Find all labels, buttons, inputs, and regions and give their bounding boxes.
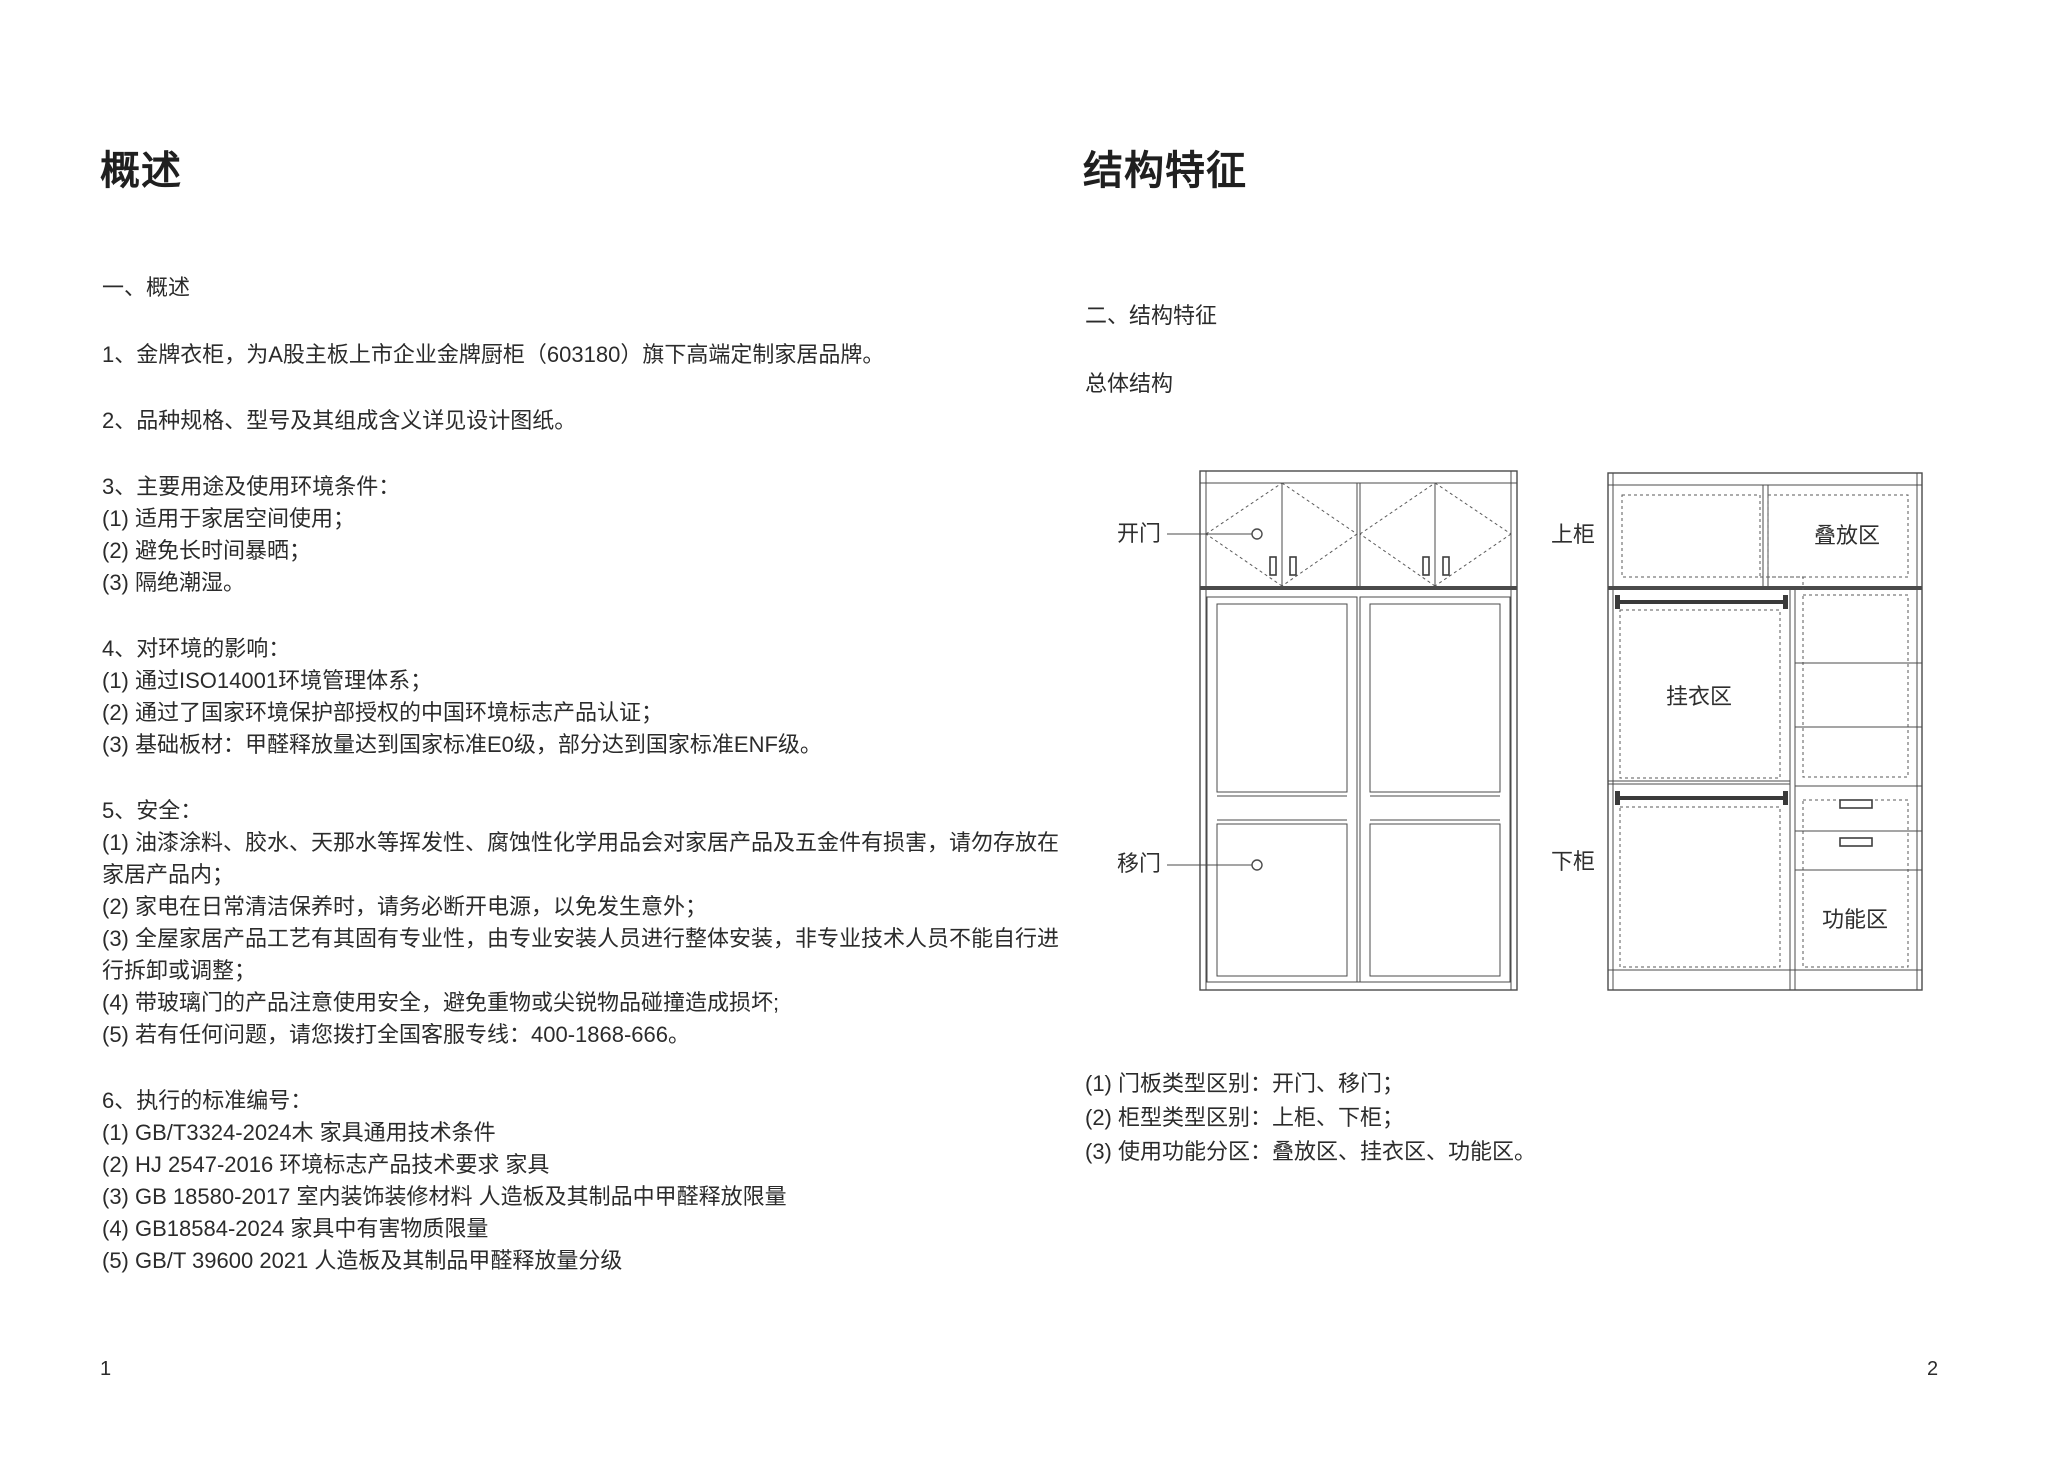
body-line: (2) 避免长时间暴晒； xyxy=(102,537,311,565)
open-door-label: 开门 xyxy=(1117,521,1161,547)
section-heading-structure: 二、结构特征 xyxy=(1085,302,1217,330)
page-number-right: 2 xyxy=(1927,1358,1938,1381)
body-line: (4) 带玻璃门的产品注意使用安全，避免重物或尖锐物品碰撞造成损坏; xyxy=(102,989,779,1017)
body-line: (3) 隔绝潮湿。 xyxy=(102,569,245,597)
drawer-section xyxy=(1795,800,1922,967)
body-line: (1) GB/T3324-2024木 家具通用技术条件 xyxy=(102,1119,496,1147)
page-number-left: 1 xyxy=(100,1358,111,1381)
note-line: (1) 门板类型区别：开门、移门； xyxy=(1085,1070,1404,1098)
hanging-rod-upper xyxy=(1615,595,1788,609)
body-line: (2) HJ 2547-2016 环境标志产品技术要求 家具 xyxy=(102,1151,549,1179)
note-line: (3) 使用功能分区：叠放区、挂衣区、功能区。 xyxy=(1085,1138,1536,1166)
body-line: (2) 家电在日常清洁保养时，请务必断开电源，以免发生意外； xyxy=(102,893,707,921)
body-line: (5) 若有任何问题，请您拨打全国客服专线：400-1868-666。 xyxy=(102,1021,690,1049)
section-heading-overview: 一、概述 xyxy=(102,274,190,302)
subsection-heading-overall-structure: 总体结构 xyxy=(1085,370,1173,398)
sliding-door-label: 移门 xyxy=(1117,851,1161,877)
page-title-overview: 概述 xyxy=(100,138,182,196)
function-zone-label: 功能区 xyxy=(1822,907,1888,933)
body-line: (1) 通过ISO14001环境管理体系； xyxy=(102,667,432,695)
body-line: (3) 基础板材：甲醛释放量达到国家标准E0级，部分达到国家标准ENF级。 xyxy=(102,731,822,759)
body-line: (3) 全屋家居产品工艺有其固有专业性，由专业安装人员进行整体安装，非专业技术人… xyxy=(102,925,1059,953)
body-line: 3、主要用途及使用环境条件： xyxy=(102,473,400,501)
note-line: (2) 柜型类型区别：上柜、下柜； xyxy=(1085,1104,1404,1132)
body-line: (5) GB/T 39600 2021 人造板及其制品甲醛释放量分级 xyxy=(102,1247,622,1275)
hanging-rod-lower xyxy=(1615,791,1788,805)
body-line: (1) 适用于家居空间使用； xyxy=(102,505,355,533)
body-line: 行拆卸或调整； xyxy=(102,957,256,985)
body-line: 6、执行的标准编号： xyxy=(102,1087,312,1115)
body-line: (1) 油漆涂料、胶水、天那水等挥发性、腐蚀性化学用品会对家居产品及五金件有损害… xyxy=(102,829,1059,857)
body-line: (3) GB 18580-2017 室内装饰装修材料 人造板及其制品中甲醛释放限… xyxy=(102,1183,787,1211)
open-door-callout xyxy=(1167,529,1262,539)
body-line: 5、安全： xyxy=(102,797,202,825)
upper-cabinet-label: 上柜 xyxy=(1551,522,1595,548)
manual-spread: 概述 一、概述 1、金牌衣柜，为A股主板上市企业金牌厨柜（603180）旗下高端… xyxy=(0,0,2048,1464)
body-line: 2、品种规格、型号及其组成含义详见设计图纸。 xyxy=(102,407,576,435)
body-line: 4、对环境的影响： xyxy=(102,635,290,663)
sliding-door-callout xyxy=(1167,860,1262,870)
lower-cabinet-label: 下柜 xyxy=(1551,849,1595,875)
page-title-structure: 结构特征 xyxy=(1083,138,1247,196)
body-line: 1、金牌衣柜，为A股主板上市企业金牌厨柜（603180）旗下高端定制家居品牌。 xyxy=(102,341,884,369)
stacking-zone-label: 叠放区 xyxy=(1814,523,1880,549)
shelf-column xyxy=(1795,595,1922,786)
body-line: (4) GB18584-2024 家具中有害物质限量 xyxy=(102,1215,488,1243)
wardrobe-front-diagram xyxy=(1167,471,1517,990)
hanging-zone-label: 挂衣区 xyxy=(1666,684,1732,710)
body-line: 家居产品内； xyxy=(102,861,234,889)
sliding-doors xyxy=(1207,597,1510,982)
body-line: (2) 通过了国家环境保护部授权的中国环境标志产品认证； xyxy=(102,699,663,727)
